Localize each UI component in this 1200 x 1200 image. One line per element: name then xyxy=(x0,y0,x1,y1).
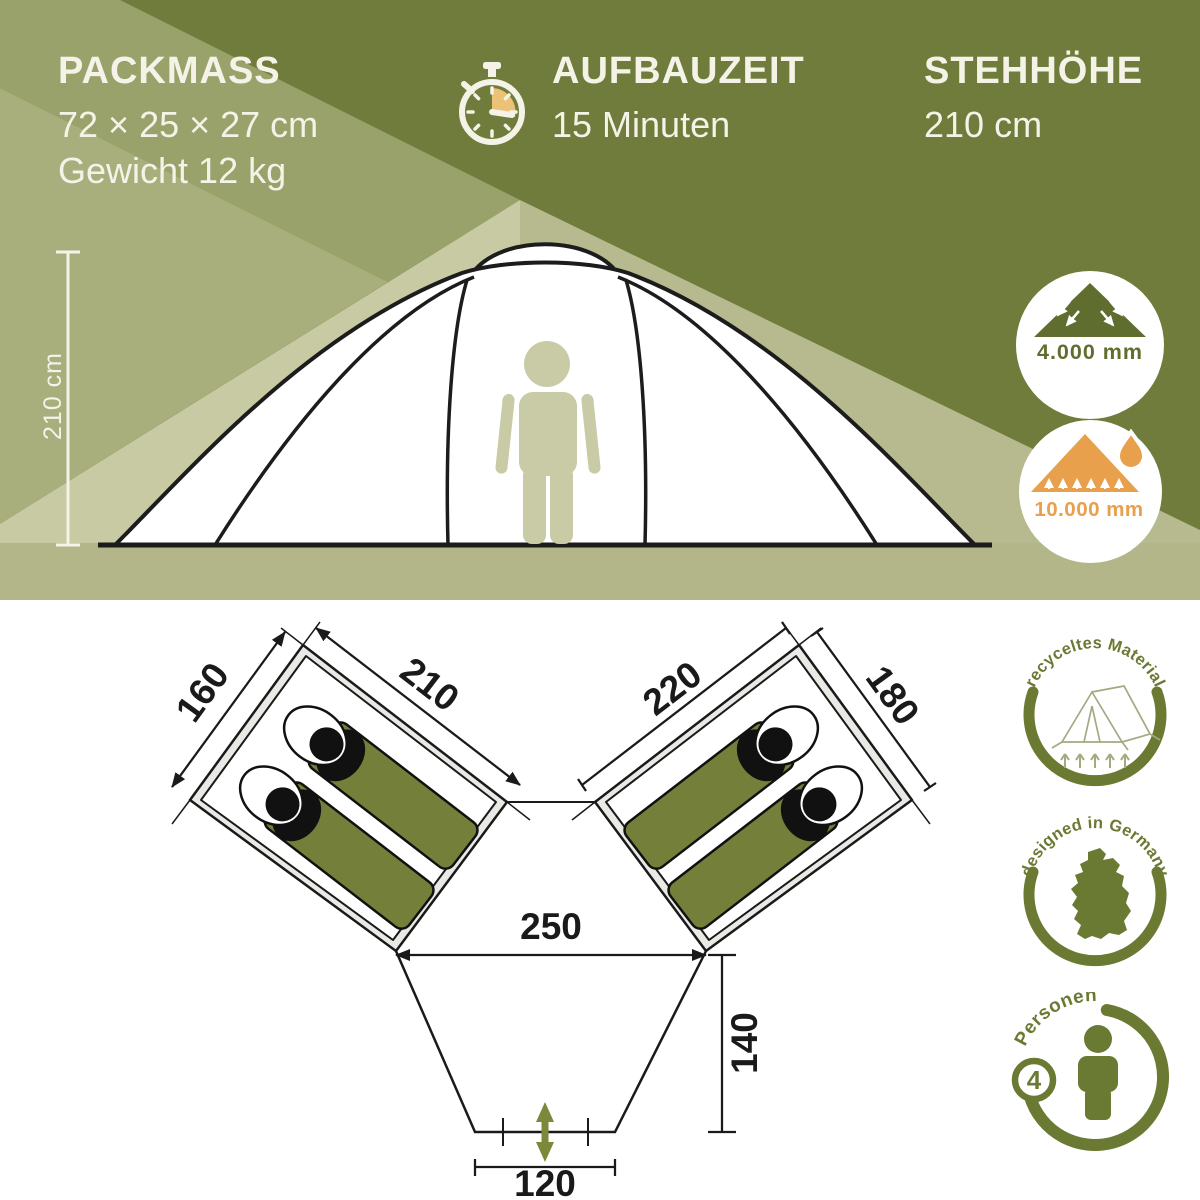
stehhoehe-block: STEHHÖHE 210 cm xyxy=(924,48,1143,148)
stopwatch-icon xyxy=(452,60,534,156)
rain-runoff-icon: 4.000 mm xyxy=(1016,271,1164,419)
water-drop-icon xyxy=(1118,432,1144,469)
person-icon xyxy=(1078,1025,1118,1120)
entrance-width-label: 120 xyxy=(514,1163,576,1200)
tent-sketch-icon xyxy=(1052,686,1160,750)
packmass-block: PACKMASS 72 × 25 × 27 cm Gewicht 12 kg xyxy=(58,48,318,194)
right-cabin-length-label: 220 xyxy=(635,653,709,723)
groundsheet-water-column-badge: 10.000 mm xyxy=(1019,420,1162,563)
center-width-label: 250 xyxy=(520,906,582,947)
recycled-material-label: recyceltes Material xyxy=(1022,634,1169,690)
porch-outline xyxy=(396,951,706,1132)
porch-depth-label: 140 xyxy=(724,1012,765,1074)
waterproof-floor-icon: 10.000 mm xyxy=(1019,420,1162,563)
stehhoehe-value: 210 cm xyxy=(924,102,1143,148)
recycle-arrows-icon xyxy=(1061,754,1129,768)
designed-in-germany-badge: designed in Germany xyxy=(1010,810,1180,980)
height-marker-label: 210 cm xyxy=(39,352,67,440)
svg-text:recyceltes Material: recyceltes Material xyxy=(1022,634,1169,690)
flysheet-water-column-label: 4.000 mm xyxy=(1037,340,1143,364)
packmass-title: PACKMASS xyxy=(58,48,318,94)
recycled-material-badge: recyceltes Material xyxy=(1010,630,1180,800)
packmass-dimensions: 72 × 25 × 27 cm xyxy=(58,102,318,148)
aufbauzeit-block: AUFBAUZEIT 15 Minuten xyxy=(552,48,805,148)
packmass-weight: Gewicht 12 kg xyxy=(58,148,318,194)
aufbauzeit-title: AUFBAUZEIT xyxy=(552,48,805,94)
stehhoehe-title: STEHHÖHE xyxy=(924,48,1143,94)
tent-infographic: 210 cm PACKMASS 72 × 25 × 27 cm Gewicht … xyxy=(0,0,1200,1200)
persons-count: 4 xyxy=(1027,1065,1042,1095)
flysheet-water-column-badge: 4.000 mm xyxy=(1016,271,1164,419)
left-cabin-width-label: 160 xyxy=(168,655,237,729)
right-cabin-width-label: 180 xyxy=(858,658,927,732)
aufbauzeit-value: 15 Minuten xyxy=(552,102,805,148)
left-cabin-length-label: 210 xyxy=(393,649,467,719)
groundsheet-water-column-label: 10.000 mm xyxy=(1034,498,1143,521)
persons-badge: Personen 4 xyxy=(1010,992,1180,1162)
germany-map-icon xyxy=(1071,848,1131,939)
